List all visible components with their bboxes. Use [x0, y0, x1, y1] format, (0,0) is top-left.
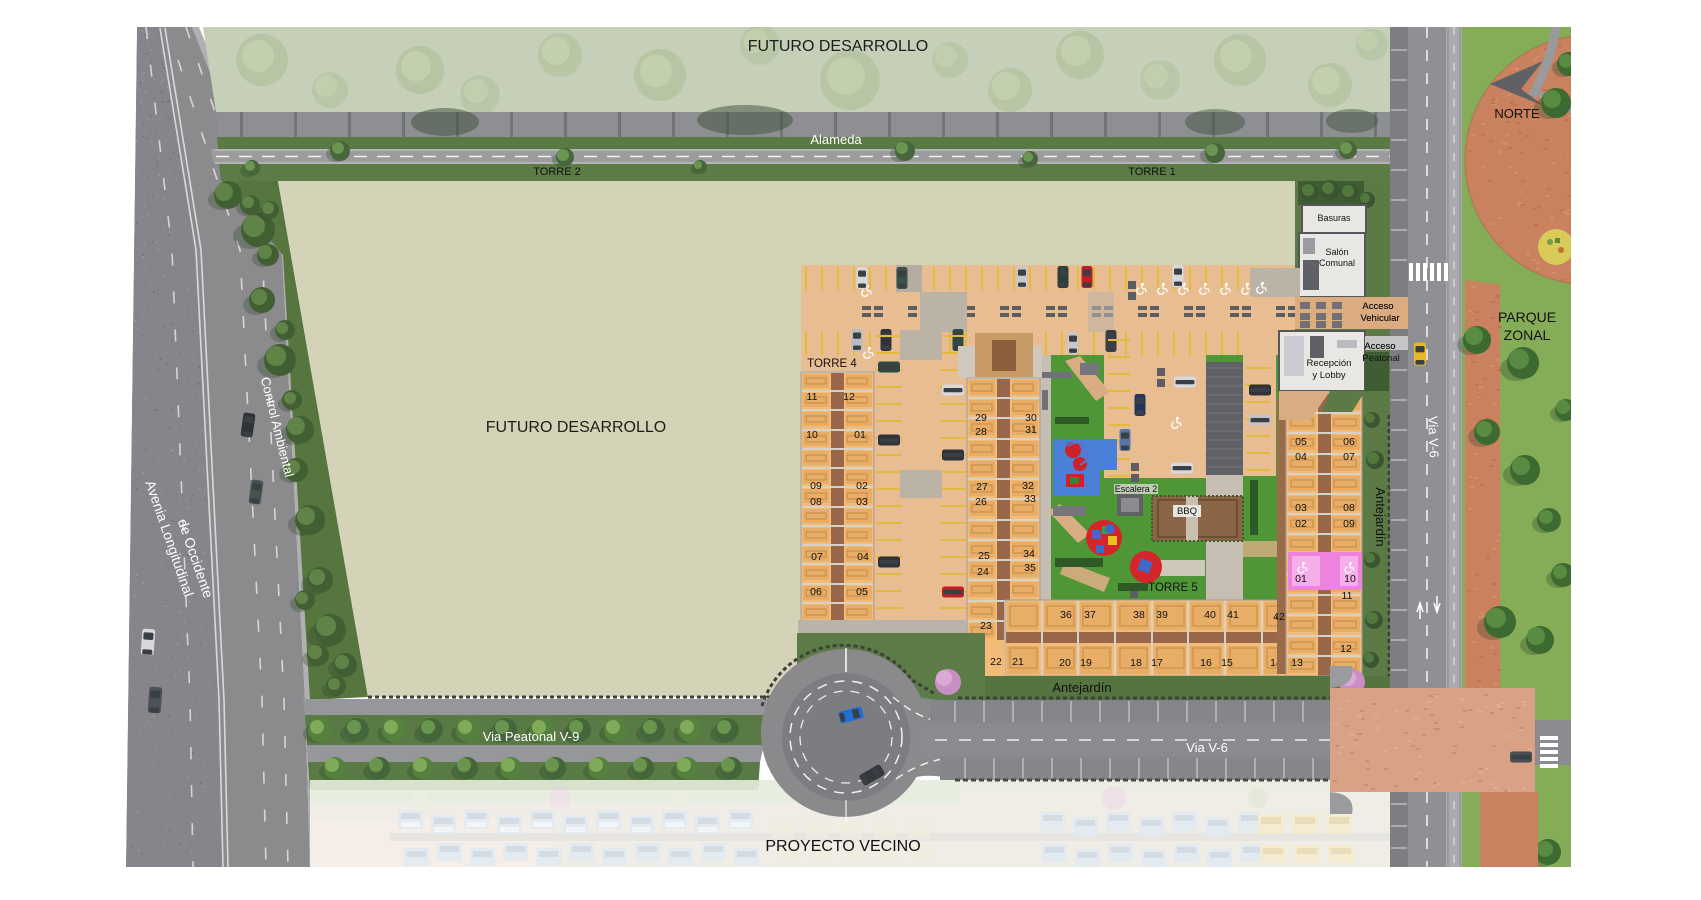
svg-text:28: 28 [975, 426, 987, 438]
svg-text:02: 02 [1295, 518, 1307, 530]
svg-text:39: 39 [1156, 609, 1168, 621]
svg-text:12: 12 [843, 391, 855, 403]
svg-text:22: 22 [990, 656, 1002, 668]
svg-text:07: 07 [1343, 451, 1355, 463]
svg-text:y Lobby: y Lobby [1312, 370, 1346, 381]
svg-text:03: 03 [1295, 502, 1307, 514]
svg-text:25: 25 [978, 550, 990, 562]
svg-text:05: 05 [1295, 436, 1307, 448]
svg-text:23: 23 [980, 620, 992, 632]
svg-text:17: 17 [1151, 657, 1163, 669]
svg-text:09: 09 [1343, 518, 1355, 530]
svg-text:07: 07 [811, 551, 823, 563]
svg-text:TORRE 5: TORRE 5 [1148, 582, 1198, 594]
svg-text:37: 37 [1084, 609, 1096, 621]
svg-text:TORRE 2: TORRE 2 [533, 166, 580, 178]
svg-text:38: 38 [1133, 609, 1145, 621]
svg-text:13: 13 [1291, 657, 1303, 669]
svg-text:PARQUE: PARQUE [1498, 309, 1556, 325]
svg-text:11: 11 [807, 391, 818, 403]
svg-text:18: 18 [1130, 657, 1142, 669]
svg-text:Vehicular: Vehicular [1360, 313, 1399, 324]
svg-text:42: 42 [1273, 611, 1285, 623]
svg-text:Recepción: Recepción [1307, 358, 1352, 369]
svg-text:41: 41 [1227, 609, 1239, 621]
svg-text:10: 10 [806, 429, 818, 441]
svg-text:16: 16 [1200, 657, 1212, 669]
svg-text:19: 19 [1080, 657, 1092, 669]
svg-text:FUTURO DESARROLLO: FUTURO DESARROLLO [486, 419, 666, 436]
svg-text:Via V-6: Via V-6 [1186, 740, 1228, 755]
svg-text:32: 32 [1022, 480, 1034, 492]
svg-text:PROYECTO VECINO: PROYECTO VECINO [765, 838, 920, 855]
svg-text:11: 11 [1342, 590, 1353, 602]
svg-text:TORRE 1: TORRE 1 [1128, 166, 1175, 178]
svg-text:08: 08 [1343, 502, 1355, 514]
svg-text:36: 36 [1060, 609, 1072, 621]
svg-text:04: 04 [857, 551, 869, 563]
svg-text:Salón: Salón [1325, 247, 1348, 257]
svg-text:09: 09 [810, 480, 822, 492]
svg-text:05: 05 [856, 586, 868, 598]
svg-text:01: 01 [854, 429, 866, 441]
svg-text:04: 04 [1295, 451, 1307, 463]
svg-text:33: 33 [1024, 493, 1036, 505]
svg-text:34: 34 [1023, 548, 1035, 560]
svg-text:29: 29 [975, 412, 987, 424]
svg-text:Peatonal: Peatonal [1362, 353, 1400, 364]
svg-text:15: 15 [1221, 657, 1233, 669]
svg-text:Escalera 2: Escalera 2 [1115, 484, 1158, 494]
svg-text:Basuras: Basuras [1317, 213, 1351, 223]
svg-text:31: 31 [1025, 424, 1037, 436]
svg-text:20: 20 [1059, 657, 1071, 669]
svg-text:27: 27 [976, 481, 988, 493]
svg-text:Antejardín: Antejardín [1373, 487, 1388, 546]
svg-text:35: 35 [1024, 562, 1036, 574]
svg-text:Antejardín: Antejardín [1052, 680, 1111, 695]
svg-text:06: 06 [810, 586, 822, 598]
svg-text:Via V-6: Via V-6 [1425, 416, 1441, 458]
svg-text:Alameda: Alameda [810, 132, 862, 147]
svg-text:NORTE: NORTE [1494, 106, 1540, 121]
svg-text:21: 21 [1012, 656, 1024, 668]
svg-text:Comunal: Comunal [1319, 258, 1355, 268]
svg-text:26: 26 [975, 496, 987, 508]
svg-text:10: 10 [1344, 573, 1356, 585]
svg-text:BBQ: BBQ [1177, 506, 1197, 517]
svg-text:Acceso: Acceso [1362, 301, 1393, 312]
svg-text:03: 03 [856, 496, 868, 508]
svg-text:06: 06 [1343, 436, 1355, 448]
svg-text:08: 08 [810, 496, 822, 508]
svg-text:01: 01 [1295, 573, 1307, 585]
svg-text:Acceso: Acceso [1364, 341, 1395, 352]
svg-text:Via Peatonal V-9: Via Peatonal V-9 [483, 729, 580, 744]
svg-text:02: 02 [856, 480, 868, 492]
svg-text:FUTURO DESARROLLO: FUTURO DESARROLLO [748, 38, 928, 55]
svg-text:ZONAL: ZONAL [1504, 327, 1551, 343]
svg-text:12: 12 [1340, 643, 1352, 655]
svg-text:40: 40 [1204, 609, 1216, 621]
svg-text:TORRE 4: TORRE 4 [807, 358, 857, 370]
svg-text:30: 30 [1025, 412, 1037, 424]
svg-text:24: 24 [977, 566, 989, 578]
